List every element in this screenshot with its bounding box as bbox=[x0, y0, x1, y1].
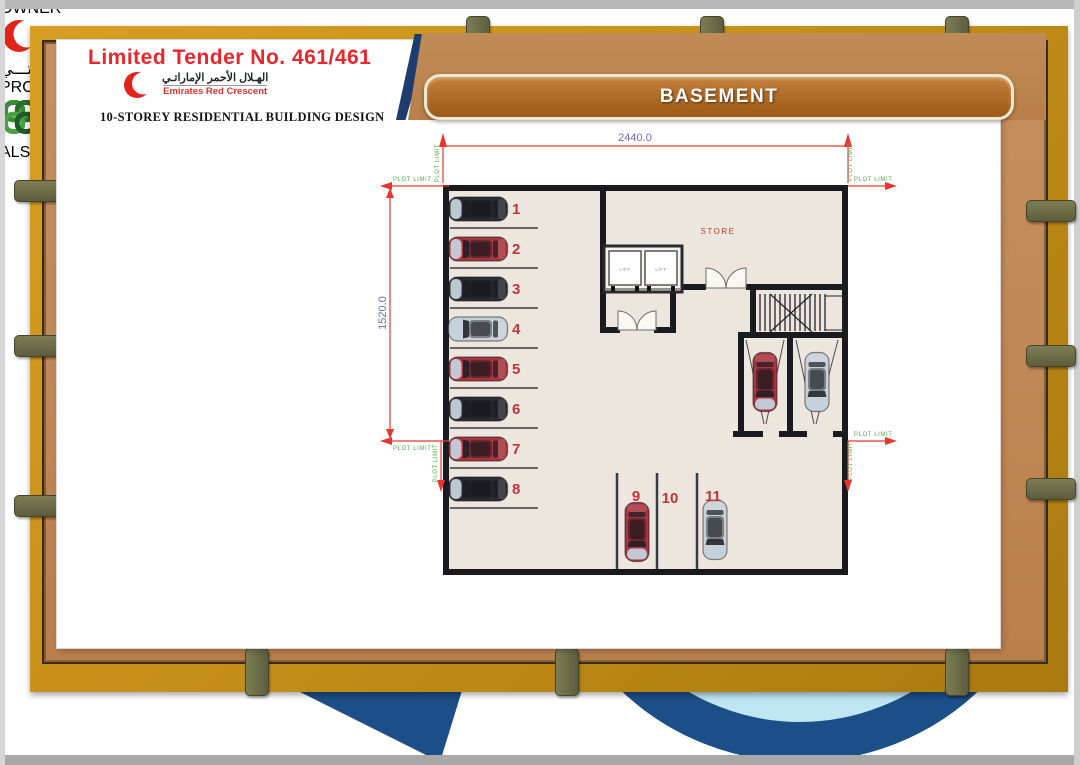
space-number-10: 10 bbox=[662, 490, 679, 507]
lift-label: LIFT bbox=[655, 267, 666, 272]
plot-limit-label: PLOT LIMIT bbox=[393, 446, 432, 452]
window-right-edge bbox=[1074, 0, 1080, 765]
car-bay-right bbox=[805, 353, 829, 412]
floor-title: BASEMENT bbox=[660, 86, 779, 108]
presentation-slide: BASEMENT Limited Tender No. 461/461 الهـ… bbox=[0, 0, 1080, 765]
space-number-1: 1 bbox=[512, 201, 520, 218]
car-space-4 bbox=[449, 317, 508, 341]
car-space-3 bbox=[449, 277, 508, 301]
window-bottom-edge bbox=[0, 755, 1080, 765]
space-number-11: 11 bbox=[705, 488, 721, 505]
plot-limit-label: PLOT LIMIT bbox=[848, 442, 854, 481]
car-space-8 bbox=[449, 477, 508, 501]
car-space-9 bbox=[625, 503, 649, 562]
red-crescent-icon bbox=[122, 70, 156, 100]
plot-limit-label: PLOT LIMIT bbox=[433, 444, 439, 483]
plot-limit-label: PLOT LIMIT bbox=[854, 432, 893, 438]
space-number-7: 7 bbox=[512, 441, 520, 458]
plot-limit-label: PLOT LIMIT bbox=[848, 143, 854, 182]
erc-english-text: Emirates Red Crescent bbox=[163, 85, 267, 97]
car-space-2 bbox=[449, 237, 508, 261]
frame-peg bbox=[945, 648, 969, 696]
car-space-7 bbox=[449, 437, 508, 461]
window-left-edge bbox=[0, 0, 5, 765]
dimension-top-value: 2440.0 bbox=[618, 132, 652, 144]
car-space-5 bbox=[449, 357, 508, 381]
plot-limit-label: PLOT LIMIT bbox=[435, 144, 441, 183]
space-number-8: 8 bbox=[512, 481, 520, 498]
frame-peg bbox=[245, 648, 269, 696]
car-space-6 bbox=[449, 397, 508, 421]
frame-peg bbox=[1026, 200, 1076, 222]
car-space-11 bbox=[703, 501, 727, 560]
plot-limit-label: PLOT LIMIT bbox=[393, 177, 432, 183]
basement-floor-plan: LIFT LIFT bbox=[370, 110, 910, 600]
lift-label: LIFT bbox=[619, 267, 630, 272]
space-number-5: 5 bbox=[512, 361, 520, 378]
space-number-6: 6 bbox=[512, 401, 520, 418]
dimension-left-value: 1520.0 bbox=[377, 296, 389, 330]
tender-title: Limited Tender No. 461/461 bbox=[88, 46, 371, 70]
window-top-edge bbox=[0, 0, 1080, 9]
lift-block: LIFT LIFT bbox=[604, 246, 682, 292]
footer-bar bbox=[38, 700, 1046, 750]
project-subtitle: 10-STOREY RESIDENTIAL BUILDING DESIGN bbox=[100, 110, 384, 125]
space-number-2: 2 bbox=[512, 241, 520, 258]
car-space-1 bbox=[449, 197, 508, 221]
car-bay-left bbox=[753, 353, 777, 412]
frame-peg bbox=[1026, 345, 1076, 367]
frame-peg bbox=[555, 648, 579, 696]
store-label: STORE bbox=[701, 227, 736, 236]
erc-logo-header: الهـلال الأحمر الإماراتـي Emirates Red C… bbox=[122, 70, 268, 100]
space-number-4: 4 bbox=[512, 321, 521, 338]
plot-limit-label: PLOT LIMIT bbox=[854, 177, 893, 183]
space-number-9: 9 bbox=[632, 488, 640, 505]
frame-peg bbox=[1026, 478, 1076, 500]
erc-arabic-text: الهـلال الأحمر الإماراتـي bbox=[162, 73, 268, 85]
space-number-3: 3 bbox=[512, 281, 520, 298]
